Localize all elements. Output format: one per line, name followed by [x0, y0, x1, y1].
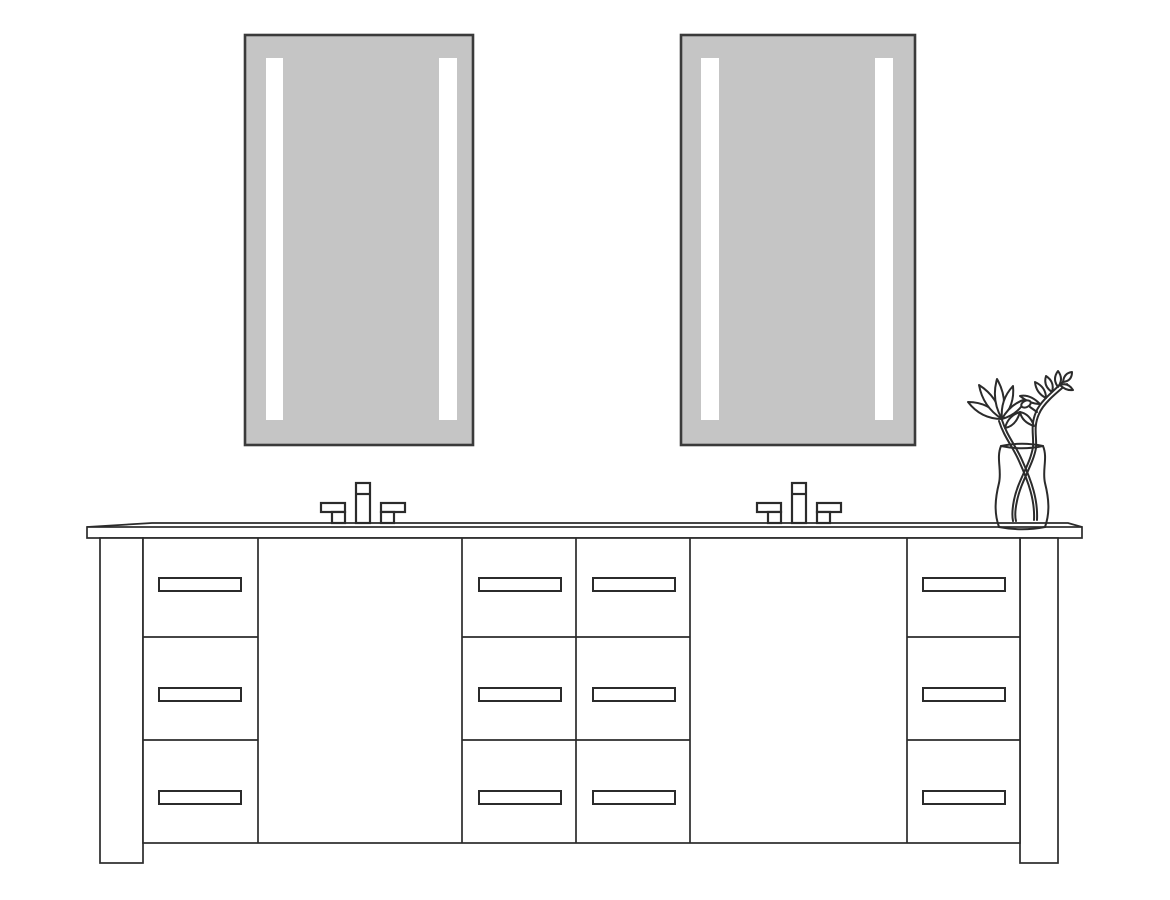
faucet-handle-left [321, 503, 345, 512]
cabinet-leg-right [1020, 538, 1058, 863]
vase-side-right [1043, 446, 1048, 527]
vanity-illustration-page [0, 0, 1170, 900]
faucet-handle-left-stem [332, 512, 345, 523]
faucet-left [321, 483, 405, 523]
led-light-strip [266, 58, 283, 420]
cabinet-body [143, 538, 1020, 843]
faucet-right [757, 483, 841, 523]
drawer-pull [923, 791, 1005, 804]
led-light-strip [701, 58, 719, 420]
drawer-pull [479, 578, 561, 591]
vase-side-left [996, 446, 1001, 527]
countertop-front-edge [87, 527, 1082, 538]
drawer-pull [593, 688, 675, 701]
led-mirror-left [245, 35, 473, 445]
drawer-pull [923, 688, 1005, 701]
faucet-spout [356, 483, 370, 523]
drawer-pull [593, 578, 675, 591]
faucet-handle-left [757, 503, 781, 512]
branch-leaves [1005, 371, 1073, 428]
faucet-handle-left-stem [768, 512, 781, 523]
led-mirror-right [681, 35, 915, 445]
flower-vase [968, 371, 1073, 529]
faucet-handle-right [817, 503, 841, 512]
drawer-pull [159, 688, 241, 701]
vanity-cabinet [100, 538, 1058, 863]
led-light-strip [439, 58, 457, 420]
faucet-handle-right-stem [817, 512, 830, 523]
faucet-handle-right [381, 503, 405, 512]
vanity-line-drawing [0, 0, 1170, 900]
leaf [1035, 382, 1046, 398]
leaf [1063, 372, 1072, 382]
faucet-spout [792, 483, 806, 523]
drawer-pull [479, 688, 561, 701]
bud-stem [1030, 407, 1037, 412]
drawer-pull [159, 791, 241, 804]
drawer-pull [593, 791, 675, 804]
drawer-pull [923, 578, 1005, 591]
countertop [87, 523, 1082, 538]
cabinet-leg-left [100, 538, 143, 863]
leaf [1020, 412, 1034, 426]
drawer-pull [159, 578, 241, 591]
led-light-strip [875, 58, 893, 420]
faucet-handle-right-stem [381, 512, 394, 523]
leaf [1045, 376, 1053, 392]
drawer-pull [479, 791, 561, 804]
